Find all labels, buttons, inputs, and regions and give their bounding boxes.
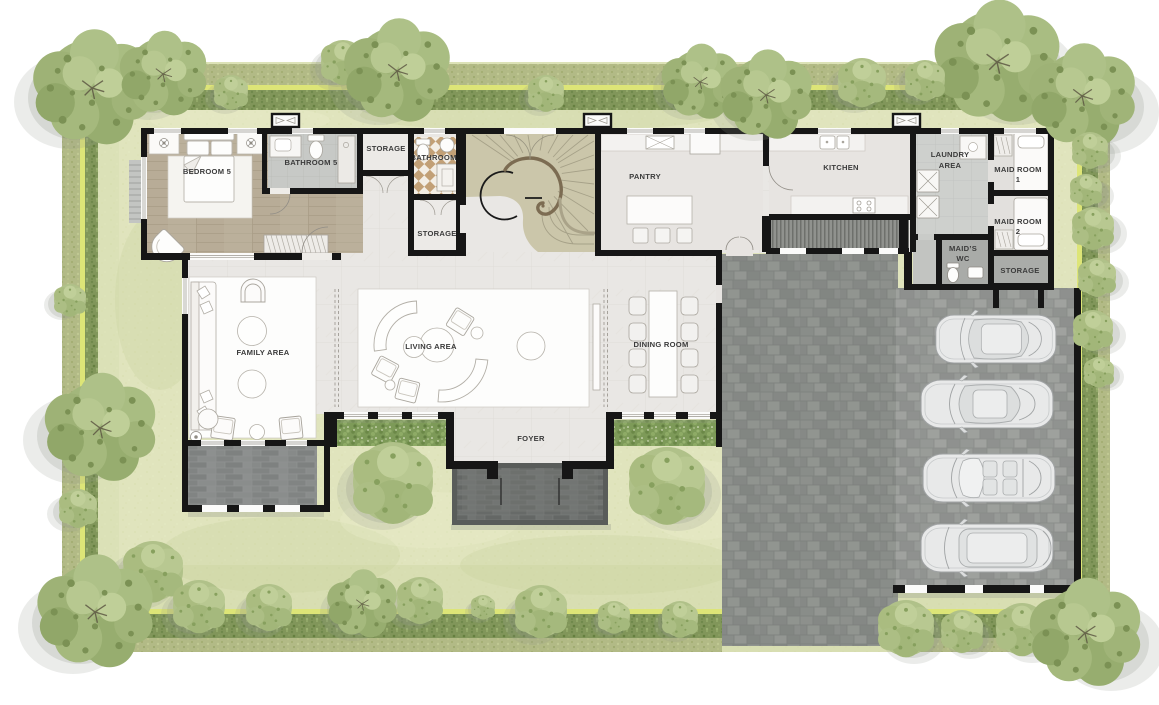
svg-text:STORAGE: STORAGE xyxy=(1000,266,1039,275)
svg-text:FOYER: FOYER xyxy=(517,434,545,443)
svg-text:AREA: AREA xyxy=(939,161,962,170)
svg-text:BATHROOM 5: BATHROOM 5 xyxy=(285,158,339,167)
svg-text:KITCHEN: KITCHEN xyxy=(823,163,859,172)
svg-text:WC: WC xyxy=(956,254,969,263)
svg-text:MAID ROOM: MAID ROOM xyxy=(994,217,1041,226)
svg-text:1: 1 xyxy=(1016,175,1021,184)
svg-text:2: 2 xyxy=(1016,227,1020,236)
svg-text:MAID ROOM: MAID ROOM xyxy=(994,165,1041,174)
svg-text:BEDROOM 5: BEDROOM 5 xyxy=(183,167,232,176)
svg-text:STORAGE: STORAGE xyxy=(366,144,405,153)
svg-text:STORAGE: STORAGE xyxy=(417,229,456,238)
svg-text:PANTRY: PANTRY xyxy=(629,172,661,181)
svg-text:LAUNDRY: LAUNDRY xyxy=(931,150,970,159)
svg-text:MAID’S: MAID’S xyxy=(949,244,977,253)
svg-text:FAMILY AREA: FAMILY AREA xyxy=(236,348,289,357)
svg-text:BATHROOM 4: BATHROOM 4 xyxy=(411,153,465,162)
svg-text:LIVING AREA: LIVING AREA xyxy=(405,342,457,351)
svg-text:DINING ROOM: DINING ROOM xyxy=(633,340,688,349)
